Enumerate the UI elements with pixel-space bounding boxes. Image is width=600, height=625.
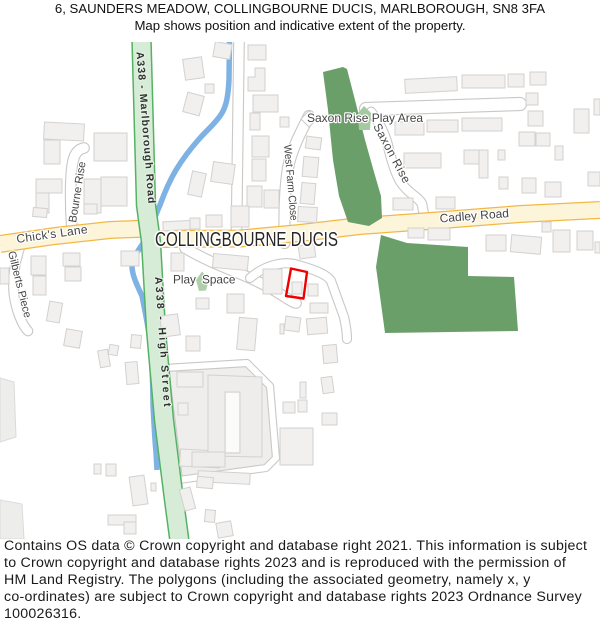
- svg-text:Space: Space: [202, 273, 236, 287]
- svg-text:Saxon Rise Play Area: Saxon Rise Play Area: [307, 111, 423, 125]
- svg-text:Play: Play: [173, 273, 196, 287]
- svg-text:COLLINGBOURNE DUCIS: COLLINGBOURNE DUCIS: [155, 228, 338, 251]
